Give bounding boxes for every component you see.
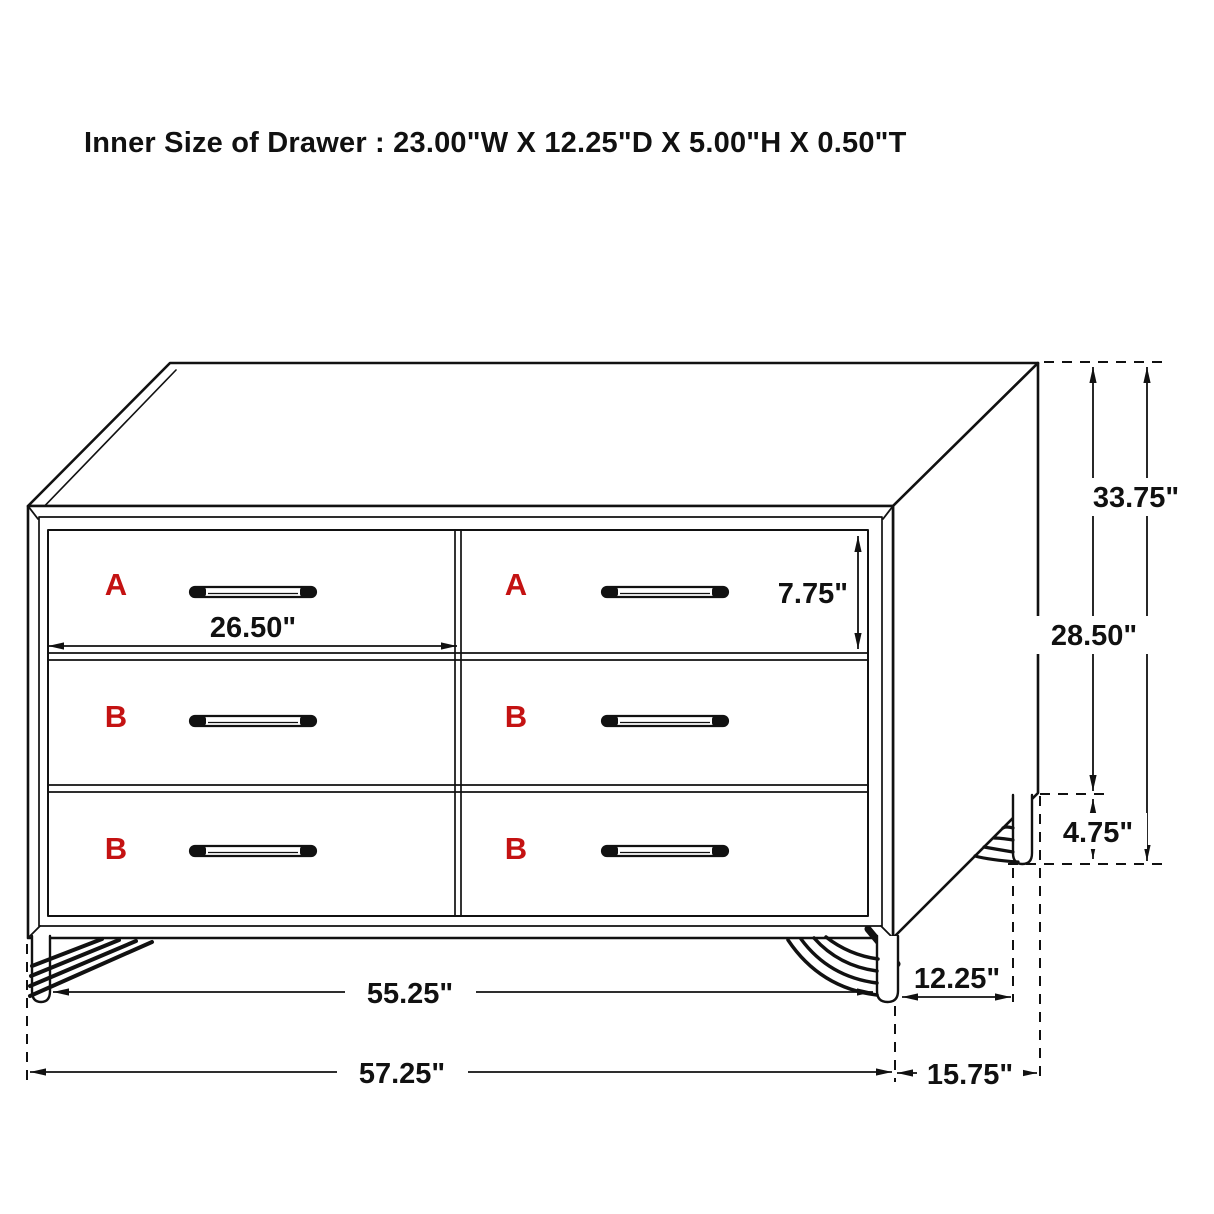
drawer-handle [602,716,728,726]
dresser-dimension-drawing: 26.50" 7.75" 33.75" 28.50" 4.75" 55.25" … [0,0,1214,1214]
drawer-handle [190,846,316,856]
drawer-label-b3: B [105,831,127,866]
drawer-handle [602,846,728,856]
drawer-label-b2: B [505,699,527,734]
drawer-label-b4: B [505,831,527,866]
dim-drawer-inner-width-label: 26.50" [210,612,296,644]
front-right-leg-rods [788,937,878,995]
dim-front-leg-spacing-label: 55.25" [367,978,453,1010]
dim-overall-width-label: 57.25" [359,1058,445,1090]
dresser-top-face [28,363,1038,506]
drawer-handle [190,587,316,597]
dim-drawer-face-height-label: 7.75" [778,578,848,610]
dim-leg-height-label: 4.75" [1063,817,1133,849]
drawer-handle [602,587,728,597]
drawer-handle [190,716,316,726]
drawer-label-a1: A [105,567,127,602]
front-right-leg [877,936,898,1002]
drawer-label-b1: B [105,699,127,734]
back-right-leg [1013,795,1032,864]
dim-case-height-label: 28.50" [1051,620,1137,652]
dimension-diagram-page: Inner Size of Drawer : 23.00"W X 12.25"D… [0,0,1214,1214]
drawer-label-a2: A [505,567,527,602]
dim-overall-height-label: 33.75" [1093,482,1179,514]
page-title: Inner Size of Drawer : 23.00"W X 12.25"D… [84,127,907,160]
dresser-body [28,363,1038,938]
dim-side-leg-spacing-label: 12.25" [914,963,1000,995]
dim-overall-depth-label: 15.75" [927,1059,1013,1091]
